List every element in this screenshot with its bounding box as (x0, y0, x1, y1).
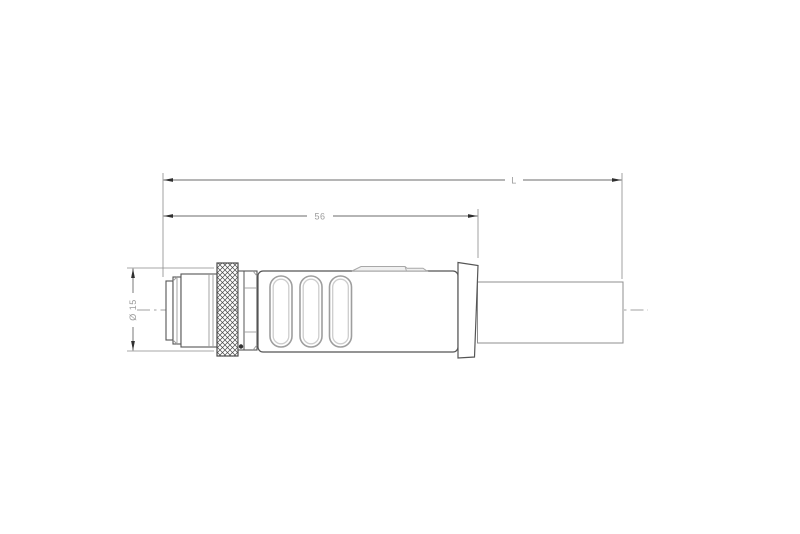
dimension-label-diameter: Ø 15 (128, 299, 138, 321)
dimension-connector-length: 56 (164, 209, 479, 258)
hex-nut-section (238, 271, 257, 350)
arrowhead-bottom (131, 341, 135, 351)
strain-relief-collar (458, 263, 478, 359)
drawing-canvas: L 56 Ø 15 (0, 0, 800, 534)
connector-thread-tip (166, 274, 217, 347)
arrowhead-top (131, 269, 135, 279)
arrowhead-left (164, 214, 174, 218)
arrowhead-left (164, 178, 174, 182)
arrowhead-right (612, 178, 622, 182)
cable (478, 282, 624, 343)
dimension-label-56: 56 (314, 212, 325, 222)
thread-barrel (181, 274, 217, 347)
coupling-nut-knurl (217, 263, 238, 356)
connector-body (258, 267, 458, 353)
body-top-tab (352, 267, 427, 272)
connector-technical-drawing: L 56 Ø 15 (0, 0, 800, 534)
marking-dot (239, 344, 243, 348)
dimension-label-L: L (511, 176, 517, 186)
arrowhead-right (468, 214, 478, 218)
